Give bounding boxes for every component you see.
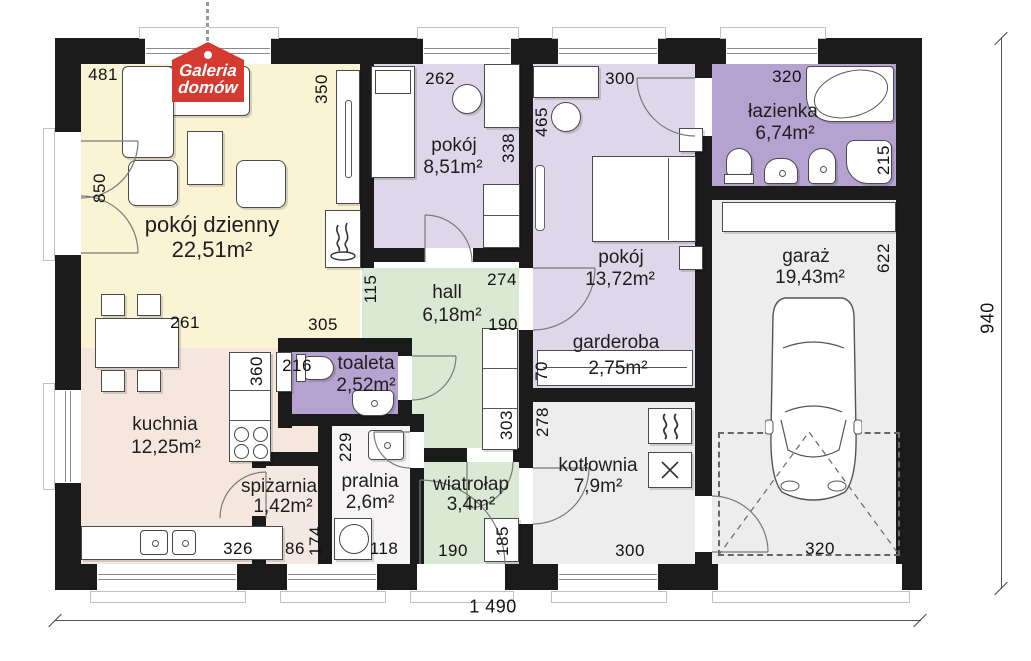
flame-icon: [326, 211, 360, 267]
dim-303: 303: [497, 410, 517, 440]
dim-line-bottom: [55, 620, 921, 621]
dim-190-entry: 190: [438, 541, 468, 561]
window-sill: [551, 591, 667, 603]
wardrobe-divider: [483, 368, 517, 369]
coffee-table: [187, 131, 223, 185]
radiator: [535, 165, 545, 231]
dim-229: 229: [336, 432, 356, 462]
basin-drain: [371, 400, 378, 407]
room-area-garage: 19,43m²: [775, 267, 845, 289]
dim-262: 262: [425, 69, 455, 89]
room-label-hall: hall: [432, 282, 462, 304]
nightstand: [679, 128, 703, 152]
dim-300-top: 300: [605, 69, 635, 89]
bidet-drain: [779, 170, 786, 177]
window-kitchen-bottom: [97, 564, 237, 590]
dim-total-width: 1 490: [469, 597, 517, 618]
logo-line2: domów: [171, 79, 244, 96]
door-opening-toilet: [398, 356, 412, 400]
dim-70: 70: [532, 361, 552, 381]
desk: [533, 66, 599, 98]
room-area-laundry: 2,6m²: [346, 492, 395, 514]
armchair: [236, 160, 286, 208]
dim-216: 216: [282, 356, 312, 376]
room-label-pantry: spiżarnia: [241, 476, 317, 498]
entrance-door-opening: [417, 564, 505, 590]
dim-274: 274: [487, 270, 517, 290]
dim-total-height: 940: [978, 302, 999, 334]
desk-chair: [551, 102, 581, 132]
room-label-bedroom2: pokój: [598, 247, 643, 269]
room-label-wardrobe: garderoba: [573, 332, 660, 354]
window-laundry-bottom: [287, 564, 377, 590]
room-label-garage: garaż: [782, 246, 830, 268]
dim-338: 338: [499, 133, 519, 163]
room-area-bedroom1: 8,51m²: [423, 157, 482, 179]
room-label-boiler: kotłownia: [558, 455, 637, 477]
wardrobe-cabinet: [483, 184, 520, 248]
door-opening-boiler: [519, 468, 533, 524]
dim-320-bath: 320: [772, 67, 802, 87]
dim-326: 326: [223, 539, 253, 559]
washer-drum: [339, 524, 369, 554]
dim-line-right: [1001, 38, 1002, 589]
dim-278: 278: [533, 407, 553, 437]
dim-115: 115: [361, 275, 381, 304]
nightstand: [679, 246, 703, 270]
dim-465: 465: [532, 107, 552, 137]
wall-outer-left: [55, 38, 81, 590]
toilet-tank: [724, 174, 754, 184]
wall-toilet-top: [278, 338, 412, 352]
dining-chair: [101, 370, 125, 392]
door-opening-laundry: [410, 432, 424, 468]
stove-burner: [253, 444, 268, 459]
room-area-vestibule: 3,4m²: [447, 494, 496, 516]
bed-pillow-line: [668, 158, 669, 240]
window-bedroom2-top: [558, 38, 658, 64]
wardrobe-divider: [483, 408, 517, 409]
dim-215: 215: [874, 145, 894, 175]
dim-174: 174: [306, 526, 326, 556]
sink-drain: [152, 540, 159, 547]
dim-118: 118: [370, 539, 399, 559]
dim-261: 261: [170, 313, 200, 333]
dining-chair: [137, 370, 161, 392]
room-area-kitchen: 12,25m²: [131, 437, 201, 459]
wall-toilet-right-upper: [398, 338, 412, 356]
water-heater: [648, 408, 692, 444]
dim-190-hall: 190: [488, 315, 518, 335]
room-area-boiler: 7,9m²: [574, 476, 623, 498]
cross-icon: [649, 453, 691, 487]
window-sill: [43, 128, 55, 261]
dim-86: 86: [285, 539, 305, 559]
window-sill: [90, 591, 246, 603]
room-area-pantry: 1,42m²: [253, 496, 312, 518]
window-bedroom1-top: [423, 38, 511, 64]
garage-shelf: [722, 202, 896, 232]
wall-bathroom-garage: [712, 186, 896, 200]
furnace: [648, 452, 692, 488]
room-label-laundry: pralnia: [341, 471, 398, 493]
chain-pin-icon: [206, 2, 209, 44]
sofa-chaise: [122, 66, 174, 158]
armchair: [128, 160, 178, 206]
dim-305: 305: [308, 315, 338, 335]
dim-300-boiler: 300: [615, 541, 645, 561]
desk-chair: [452, 84, 482, 114]
garage-apron: [712, 591, 910, 603]
logo-line1: Galeria: [171, 62, 244, 79]
stove-burner: [234, 427, 249, 442]
counter-divider: [230, 420, 270, 421]
heating-waves-icon: [649, 409, 691, 443]
wall-wardrobe-boiler: [533, 388, 695, 402]
room-area-living: 22,51m²: [172, 237, 253, 263]
dining-chair: [101, 294, 125, 316]
dining-table: [95, 318, 179, 368]
room-label-living: pokój dzienny: [145, 212, 280, 238]
dining-chair: [137, 294, 161, 316]
desk: [484, 64, 520, 128]
window-kitchen-left: [55, 390, 81, 483]
dim-185: 185: [493, 526, 513, 556]
stove-burner: [253, 427, 268, 442]
window-sill: [280, 591, 386, 603]
window-bathroom-top: [726, 38, 818, 64]
dim-350: 350: [312, 74, 332, 104]
room-area-bedroom2: 13,72m²: [585, 269, 655, 291]
pillow: [375, 70, 411, 94]
dim-320-garage: 320: [805, 539, 835, 559]
bed-double: [592, 156, 696, 242]
room-label-bathroom: łazienka: [748, 101, 818, 123]
room-label-kitchen: kuchnia: [132, 414, 198, 436]
window-boiler-bottom: [558, 564, 658, 590]
dim-481: 481: [88, 65, 118, 85]
room-label-bedroom1: pokój: [431, 135, 476, 157]
room-area-bathroom: 6,74m²: [755, 123, 814, 145]
stove-burner: [234, 444, 249, 459]
counter-divider: [230, 390, 270, 391]
door-opening-bedroom2: [519, 268, 533, 330]
floor-plan: Galeria domów pokój dzienny 22,51m² pokó…: [0, 0, 1031, 661]
room-area-toilet: 2,52m²: [336, 375, 395, 397]
sink-drain: [384, 442, 391, 449]
garage-door-opening: [718, 564, 902, 590]
room-label-toilet: toaleta: [337, 353, 394, 375]
room-area-hall: 6,18m²: [422, 305, 481, 327]
dim-360: 360: [247, 356, 267, 386]
door-opening-bedroom1: [425, 248, 473, 262]
dim-850: 850: [90, 173, 110, 203]
cabinet-divider: [484, 215, 519, 216]
toilet-drain: [820, 166, 827, 173]
toilet: [726, 148, 752, 176]
sink-drain: [182, 540, 189, 547]
logo-hole: [204, 51, 212, 59]
tv-screen: [345, 100, 352, 178]
garage-door-zone: [718, 432, 900, 556]
dim-622: 622: [874, 243, 894, 273]
room-kitchen-floor-strip: [278, 426, 318, 452]
room-area-wardrobe: 2,75m²: [588, 358, 647, 380]
door-opening-garage: [695, 496, 712, 552]
room-label-vestibule: wiatrołap: [433, 474, 509, 496]
fireplace: [325, 210, 361, 268]
terrace-door-opening: [55, 132, 81, 255]
door-opening-vestibule: [467, 448, 513, 462]
wall-toilet-right-lower: [398, 400, 412, 416]
window-sill: [43, 383, 55, 490]
